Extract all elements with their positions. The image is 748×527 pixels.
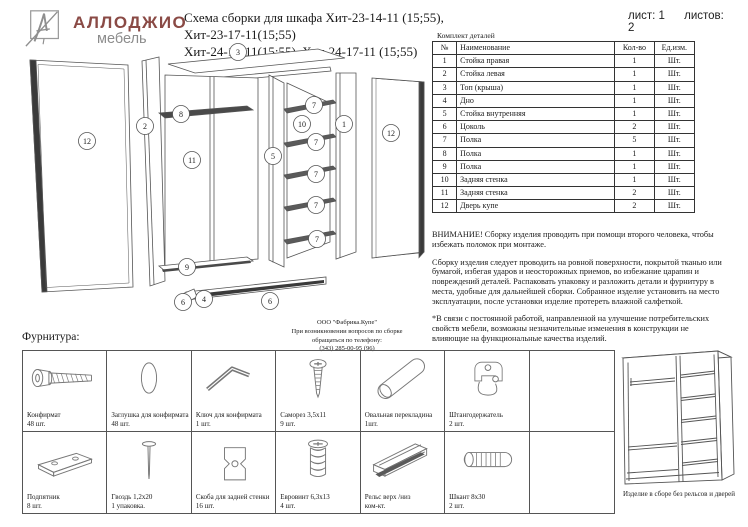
- hardware-qty: ком-кт.: [365, 502, 442, 510]
- part-qty: 1: [615, 81, 654, 94]
- warning-text: ВНИМАНИЕ! Сборку изделия проводить при п…: [432, 230, 724, 250]
- screw-icon: [277, 355, 358, 403]
- part-num: 11: [433, 187, 457, 200]
- hardware-grid: Конфирмат48 шт.Заглушка для конфирмата48…: [22, 350, 615, 514]
- part-unit: Шт.: [654, 94, 694, 107]
- diagram-callout-number: 1: [342, 120, 346, 129]
- diagram-callout-number: 10: [298, 120, 306, 129]
- hardware-cell: Подпятник8 шт.: [23, 432, 107, 513]
- bracket-icon: [193, 436, 274, 484]
- part-name: Полка: [457, 160, 615, 173]
- hardware-label: Овальная перекладина1шт.: [365, 411, 442, 428]
- hardware-label: Ключ для конфирмата1 шт.: [196, 411, 273, 428]
- part-name: Полка: [457, 147, 615, 160]
- hardware-qty: 4 шт.: [280, 502, 357, 510]
- assembly-instruction-sheet: АЛЛОДЖИО мебель Схема сборки для шкафа Х…: [0, 0, 748, 527]
- hardware-cell: Евровинт 6,3х134 шт.: [276, 432, 360, 513]
- assembled-unit-caption: Изделие в сборе без рельсов и дверей: [610, 490, 748, 498]
- hardware-qty: 2 шт.: [449, 420, 526, 428]
- part-qty: 2: [615, 121, 654, 134]
- hardware-name: Конфирмат: [27, 411, 104, 419]
- hardware-name: Евровинт 6,3х13: [280, 493, 357, 501]
- hardware-heading: Фурнитура:: [22, 331, 80, 343]
- diagram-callout-number: 7: [314, 201, 318, 210]
- table-row: 3Топ (крыша)1Шт.: [433, 81, 695, 94]
- diagram-callout-number: 5: [271, 152, 275, 161]
- part-num: 10: [433, 173, 457, 186]
- hardware-label: Конфирмат48 шт.: [27, 411, 104, 428]
- hardware-qty: 2 шт.: [449, 502, 526, 510]
- hardware-label: Скоба для задней стенки16 шт.: [196, 493, 273, 510]
- sheet-number: лист: 1: [628, 10, 665, 22]
- table-row: 8Полка1Шт.: [433, 147, 695, 160]
- hardware-qty: 8 шт.: [27, 502, 104, 510]
- sheet-info: лист: 1 листов: 2: [628, 10, 748, 34]
- part-unit: Шт.: [654, 68, 694, 81]
- factory-note-line2: При возникновении вопросов по сборке: [272, 328, 422, 337]
- diagram-callout-number: 7: [314, 170, 318, 179]
- part-name: Цоколь: [457, 121, 615, 134]
- confirmat-screw-icon: [24, 355, 105, 403]
- cap-icon: [108, 355, 189, 403]
- table-row: 2Стойка левая1Шт.: [433, 68, 695, 81]
- part-unit: Шт.: [654, 107, 694, 120]
- hardware-qty: 48 шт.: [27, 420, 104, 428]
- hardware-name: Овальная перекладина: [365, 411, 442, 419]
- diagram-callout-number: 12: [387, 129, 395, 138]
- part-qty: 1: [615, 68, 654, 81]
- part-num: 3: [433, 81, 457, 94]
- hex-key-icon: [193, 355, 274, 403]
- table-row: 12Дверь купе2Шт.: [433, 200, 695, 213]
- hardware-name: Скоба для задней стенки: [196, 493, 273, 501]
- col-header-qty: Кол-во: [615, 42, 654, 55]
- col-header-unit: Ед.изм.: [654, 42, 694, 55]
- part-unit: Шт.: [654, 55, 694, 68]
- diagram-callout-number: 6: [181, 298, 185, 307]
- part-unit: Шт.: [654, 173, 694, 186]
- part-qty: 2: [615, 200, 654, 213]
- assembled-unit-drawing: [618, 342, 748, 499]
- diagram-callout-number: 8: [179, 110, 183, 119]
- diagram-callout-number: 12: [83, 137, 91, 146]
- hardware-cell: Конфирмат48 шт.: [23, 351, 107, 432]
- part-unit: Шт.: [654, 121, 694, 134]
- hardware-cell-empty: [530, 432, 614, 513]
- diagram-callout-number: 7: [314, 138, 318, 147]
- part-name: Дно: [457, 94, 615, 107]
- hardware-label: Штангодержатель2 шт.: [449, 411, 526, 428]
- hardware-cell: Шкант 8х302 шт.: [445, 432, 529, 513]
- diagram-callout-number: 3: [236, 48, 240, 57]
- hardware-name: Заглушка для конфирмата: [111, 411, 188, 419]
- exploded-assembly-diagram: 3122811951077777112646: [18, 38, 430, 333]
- col-header-name: Наименование: [457, 42, 615, 55]
- hardware-label: Рельс верх /низком-кт.: [365, 493, 442, 510]
- hardware-label: Подпятник8 шт.: [27, 493, 104, 510]
- part-qty: 1: [615, 55, 654, 68]
- hardware-qty: 16 шт.: [196, 502, 273, 510]
- brand-name: АЛЛОДЖИО: [73, 13, 187, 33]
- diagram-callout-number: 9: [185, 263, 189, 272]
- table-row: 10Задняя стенка1Шт.: [433, 173, 695, 186]
- part-name: Стойка внутренняя: [457, 107, 615, 120]
- hardware-cell: Овальная перекладина1шт.: [361, 351, 445, 432]
- part-unit: Шт.: [654, 81, 694, 94]
- parts-table: № Наименование Кол-во Ед.изм. 1Стойка пр…: [432, 41, 695, 213]
- table-header-row: № Наименование Кол-во Ед.изм.: [433, 42, 695, 55]
- table-row: 5Стойка внутренняя1Шт.: [433, 107, 695, 120]
- part-qty: 1: [615, 94, 654, 107]
- rail-icon: [362, 436, 443, 484]
- part-num: 12: [433, 200, 457, 213]
- hardware-cell: Скоба для задней стенки16 шт.: [192, 432, 276, 513]
- col-header-num: №: [433, 42, 457, 55]
- part-unit: Шт.: [654, 160, 694, 173]
- table-row: 7Полка5Шт.: [433, 134, 695, 147]
- hardware-label: Шкант 8х302 шт.: [449, 493, 526, 510]
- hardware-cell: Ключ для конфирмата1 шт.: [192, 351, 276, 432]
- parts-table-body: 1Стойка правая1Шт.2Стойка левая1Шт.3Топ …: [433, 55, 695, 213]
- part-qty: 1: [615, 147, 654, 160]
- nail-icon: [108, 436, 189, 484]
- hardware-name: Саморез 3,5х11: [280, 411, 357, 419]
- hardware-qty: 9 шт.: [280, 420, 357, 428]
- table-row: 9Полка1Шт.: [433, 160, 695, 173]
- part-unit: Шт.: [654, 187, 694, 200]
- part-qty: 1: [615, 173, 654, 186]
- part-num: 2: [433, 68, 457, 81]
- diagram-callout-number: 4: [202, 295, 206, 304]
- hardware-qty: 1 упаковка.: [111, 502, 188, 510]
- part-name: Задняя стенка: [457, 173, 615, 186]
- hardware-name: Гвоздь 1,2х20: [111, 493, 188, 501]
- factory-note-line3: обращаться по телефону:: [272, 337, 422, 346]
- diagram-callout-number: 11: [188, 156, 196, 165]
- table-row: 4Дно1Шт.: [433, 94, 695, 107]
- hardware-name: Ключ для конфирмата: [196, 411, 273, 419]
- table-row: 1Стойка правая1Шт.: [433, 55, 695, 68]
- part-num: 7: [433, 134, 457, 147]
- part-qty: 1: [615, 107, 654, 120]
- euro-screw-icon: [277, 436, 358, 484]
- part-name: Дверь купе: [457, 200, 615, 213]
- hardware-name: Шкант 8х30: [449, 493, 526, 501]
- part-name: Полка: [457, 134, 615, 147]
- diagram-callout-number: 7: [312, 101, 316, 110]
- part-name: Стойка правая: [457, 55, 615, 68]
- part-unit: Шт.: [654, 200, 694, 213]
- table-row: 6Цоколь2Шт.: [433, 121, 695, 134]
- hardware-cell: Рельс верх /низком-кт.: [361, 432, 445, 513]
- hardware-cell-empty: [530, 351, 614, 432]
- parts-table-caption: Комплект деталей: [437, 31, 495, 40]
- table-row: 11Задняя стенка2Шт.: [433, 187, 695, 200]
- part-qty: 5: [615, 134, 654, 147]
- factory-name: ООО "Фабрика.Купе": [272, 319, 422, 328]
- part-qty: 1: [615, 160, 654, 173]
- diagram-callout-number: 2: [143, 122, 147, 131]
- hardware-label: Саморез 3,5х119 шт.: [280, 411, 357, 428]
- hardware-label: Заглушка для конфирмата48 шт.: [111, 411, 188, 428]
- hardware-cell: Гвоздь 1,2х201 упаковка.: [107, 432, 191, 513]
- hardware-cell: Заглушка для конфирмата48 шт.: [107, 351, 191, 432]
- part-unit: Шт.: [654, 134, 694, 147]
- notices-block: ВНИМАНИЕ! Сборку изделия проводить при п…: [432, 230, 724, 352]
- oval-bar-icon: [362, 355, 443, 403]
- hardware-label: Гвоздь 1,2х201 упаковка.: [111, 493, 188, 510]
- part-num: 9: [433, 160, 457, 173]
- diagram-callout-number: 6: [268, 297, 272, 306]
- part-unit: Шт.: [654, 147, 694, 160]
- part-num: 5: [433, 107, 457, 120]
- part-name: Задняя стенка: [457, 187, 615, 200]
- hardware-qty: 48 шт.: [111, 420, 188, 428]
- factory-note: ООО "Фабрика.Купе" При возникновении воп…: [272, 319, 422, 354]
- assembly-instructions-text: Сборку изделия следует проводить на ровн…: [432, 258, 724, 307]
- part-num: 6: [433, 121, 457, 134]
- hardware-label: Евровинт 6,3х134 шт.: [280, 493, 357, 510]
- part-num: 4: [433, 94, 457, 107]
- hardware-name: Штангодержатель: [449, 411, 526, 419]
- hardware-cell: Штангодержатель2 шт.: [445, 351, 529, 432]
- disclaimer-text: *В связи с постоянной работой, направлен…: [432, 314, 724, 343]
- hardware-qty: 1 шт.: [196, 420, 273, 428]
- part-name: Топ (крыша): [457, 81, 615, 94]
- part-num: 1: [433, 55, 457, 68]
- hardware-qty: 1шт.: [365, 420, 442, 428]
- diagram-callout-number: 7: [315, 235, 319, 244]
- dowel-icon: [446, 436, 527, 484]
- part-qty: 2: [615, 187, 654, 200]
- part-name: Стойка левая: [457, 68, 615, 81]
- foot-pad-icon: [24, 436, 105, 484]
- hardware-cell: Саморез 3,5х119 шт.: [276, 351, 360, 432]
- hardware-name: Подпятник: [27, 493, 104, 501]
- hardware-name: Рельс верх /низ: [365, 493, 442, 501]
- rod-holder-icon: [446, 355, 527, 403]
- part-num: 8: [433, 147, 457, 160]
